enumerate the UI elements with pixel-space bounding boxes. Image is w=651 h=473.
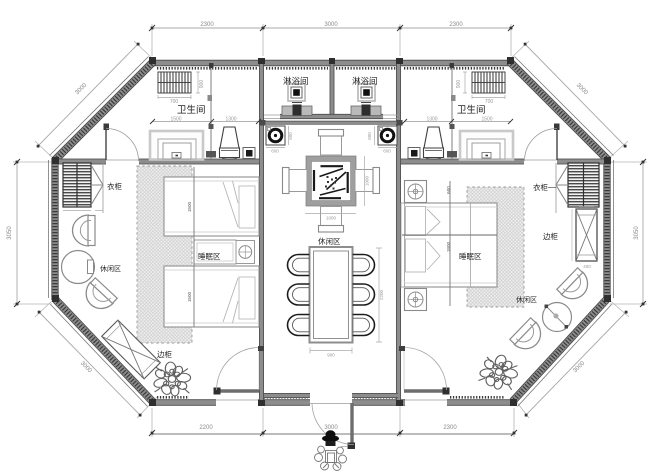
svg-text:700: 700 (485, 99, 494, 105)
svg-text:900: 900 (199, 80, 205, 89)
svg-text:600: 600 (383, 149, 391, 154)
svg-text:3000: 3000 (324, 425, 338, 431)
svg-text:1500: 1500 (187, 201, 192, 212)
svg-text:休闲区: 休闲区 (318, 236, 341, 246)
svg-text:淋浴间: 淋浴间 (352, 76, 378, 86)
svg-text:衣柜: 衣柜 (533, 182, 548, 192)
svg-text:卫生间: 卫生间 (177, 104, 206, 116)
svg-text:900: 900 (327, 353, 335, 358)
svg-text:3000: 3000 (324, 22, 338, 28)
svg-text:1000: 1000 (326, 216, 337, 221)
svg-text:3050: 3050 (634, 226, 640, 240)
svg-text:卫生间: 卫生间 (457, 104, 486, 116)
svg-text:1500: 1500 (481, 117, 492, 123)
svg-text:2300: 2300 (449, 22, 463, 28)
svg-text:600: 600 (271, 149, 279, 154)
svg-text:1300: 1300 (225, 117, 236, 123)
svg-text:3050: 3050 (7, 226, 13, 240)
svg-text:休闲区: 休闲区 (100, 264, 121, 273)
svg-text:1300: 1300 (426, 117, 437, 123)
svg-text:600: 600 (367, 132, 372, 140)
svg-text:边柜: 边柜 (157, 349, 172, 359)
svg-text:1000: 1000 (365, 175, 370, 186)
svg-text:休闲区: 休闲区 (516, 295, 537, 304)
svg-text:2300: 2300 (443, 425, 457, 431)
svg-text:1500: 1500 (170, 117, 181, 123)
svg-text:1500: 1500 (187, 291, 192, 302)
svg-text:600: 600 (446, 186, 451, 194)
svg-text:睡眠区: 睡眠区 (198, 252, 221, 261)
svg-text:2300: 2300 (200, 22, 214, 28)
svg-text:睡眠区: 睡眠区 (459, 252, 482, 261)
svg-text:600: 600 (288, 132, 293, 140)
svg-text:400: 400 (583, 264, 591, 269)
svg-text:衣柜: 衣柜 (107, 181, 122, 191)
svg-text:淋浴间: 淋浴间 (283, 76, 309, 86)
svg-text:900: 900 (456, 80, 462, 89)
svg-text:2200: 2200 (199, 425, 213, 431)
svg-text:2200: 2200 (379, 289, 384, 300)
svg-text:1800: 1800 (446, 241, 451, 252)
svg-text:边柜: 边柜 (543, 231, 558, 241)
